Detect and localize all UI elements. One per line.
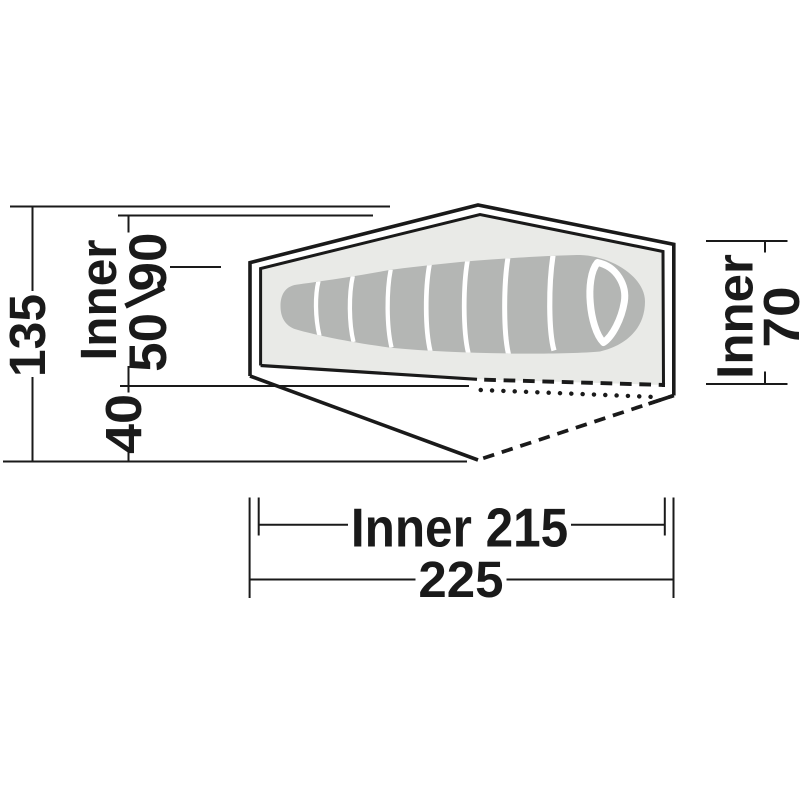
svg-text:70: 70 — [754, 286, 800, 347]
svg-text:135: 135 — [0, 294, 56, 377]
svg-text:50: 50 — [119, 313, 178, 372]
svg-text:90: 90 — [119, 233, 178, 292]
svg-text:225: 225 — [418, 551, 503, 608]
svg-text:Inner 215: Inner 215 — [351, 498, 568, 559]
svg-text:40: 40 — [95, 394, 152, 454]
